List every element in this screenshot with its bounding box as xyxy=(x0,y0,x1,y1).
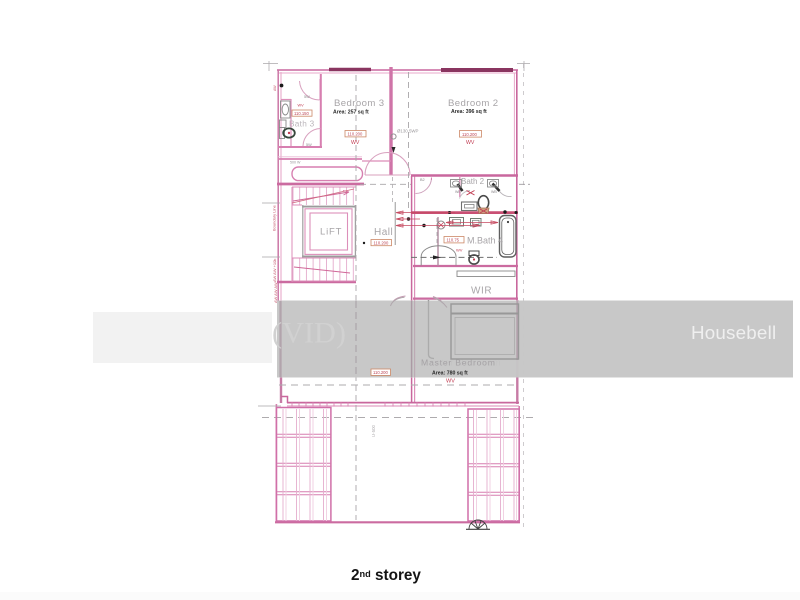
svg-text:B2: B2 xyxy=(420,178,425,182)
svg-text:110.200: 110.200 xyxy=(348,132,363,137)
svg-text:Bedroom 3: Bedroom 3 xyxy=(334,98,385,109)
svg-text:Master Bedroom: Master Bedroom xyxy=(421,358,496,368)
svg-text:Area: 780 sq ft: Area: 780 sq ft xyxy=(432,371,468,377)
svg-text:AW AW AW: AW AW AW xyxy=(273,282,278,303)
svg-text:Housebell: Housebell xyxy=(691,322,776,343)
svg-text:WV: WV xyxy=(466,140,475,146)
svg-text:110.200: 110.200 xyxy=(374,241,389,246)
svg-text:WB: WB xyxy=(455,190,461,194)
svg-text:Area: 257 sq ft: Area: 257 sq ft xyxy=(333,110,369,116)
svg-text:WV: WV xyxy=(446,379,455,385)
svg-text:Bath 3: Bath 3 xyxy=(289,120,315,129)
svg-text:110.75: 110.75 xyxy=(447,238,460,243)
svg-text:AW: AW xyxy=(273,85,277,91)
svg-text:Ø130 5WP: Ø130 5WP xyxy=(397,129,419,134)
svg-text:Hall: Hall xyxy=(374,227,393,238)
svg-text:LiFT: LiFT xyxy=(320,227,342,238)
svg-text:5W: 5W xyxy=(306,143,312,147)
svg-text:5W: 5W xyxy=(304,95,310,99)
svg-text:110.200: 110.200 xyxy=(462,132,477,137)
svg-text:(VID): (VID) xyxy=(272,317,346,350)
svg-text:WB: WB xyxy=(491,190,497,194)
svg-text:WV: WV xyxy=(298,104,305,108)
svg-text:110.200: 110.200 xyxy=(373,370,388,375)
svg-text:Boundary Line: Boundary Line xyxy=(272,204,277,231)
svg-text:110.150: 110.150 xyxy=(294,111,309,116)
svg-text:Area: 396 sq ft: Area: 396 sq ft xyxy=(451,109,487,115)
svg-text:U-500: U-500 xyxy=(371,424,376,437)
svg-text:WIR: WIR xyxy=(471,286,492,297)
svg-text:WV: WV xyxy=(456,248,463,253)
svg-text:Bedroom 2: Bedroom 2 xyxy=(448,98,499,109)
svg-text:WV: WV xyxy=(351,140,360,146)
svg-text:M.Bath 4: M.Bath 4 xyxy=(467,236,503,246)
svg-text:AW AW +10k: AW AW +10k xyxy=(272,259,277,282)
svg-text:Bath 2: Bath 2 xyxy=(461,177,485,186)
svg-text:500 W: 500 W xyxy=(290,161,301,165)
